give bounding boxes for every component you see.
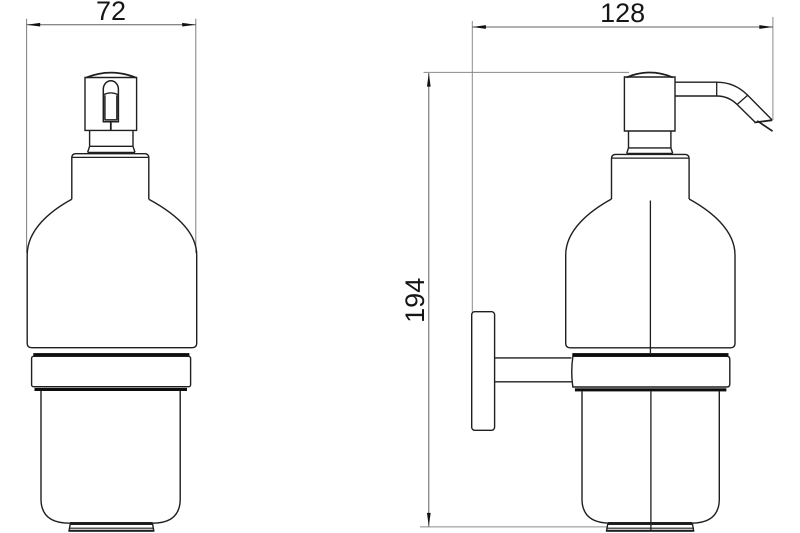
svg-text:194: 194 [400, 278, 430, 323]
svg-text:128: 128 [600, 0, 645, 28]
svg-text:72: 72 [96, 0, 126, 26]
